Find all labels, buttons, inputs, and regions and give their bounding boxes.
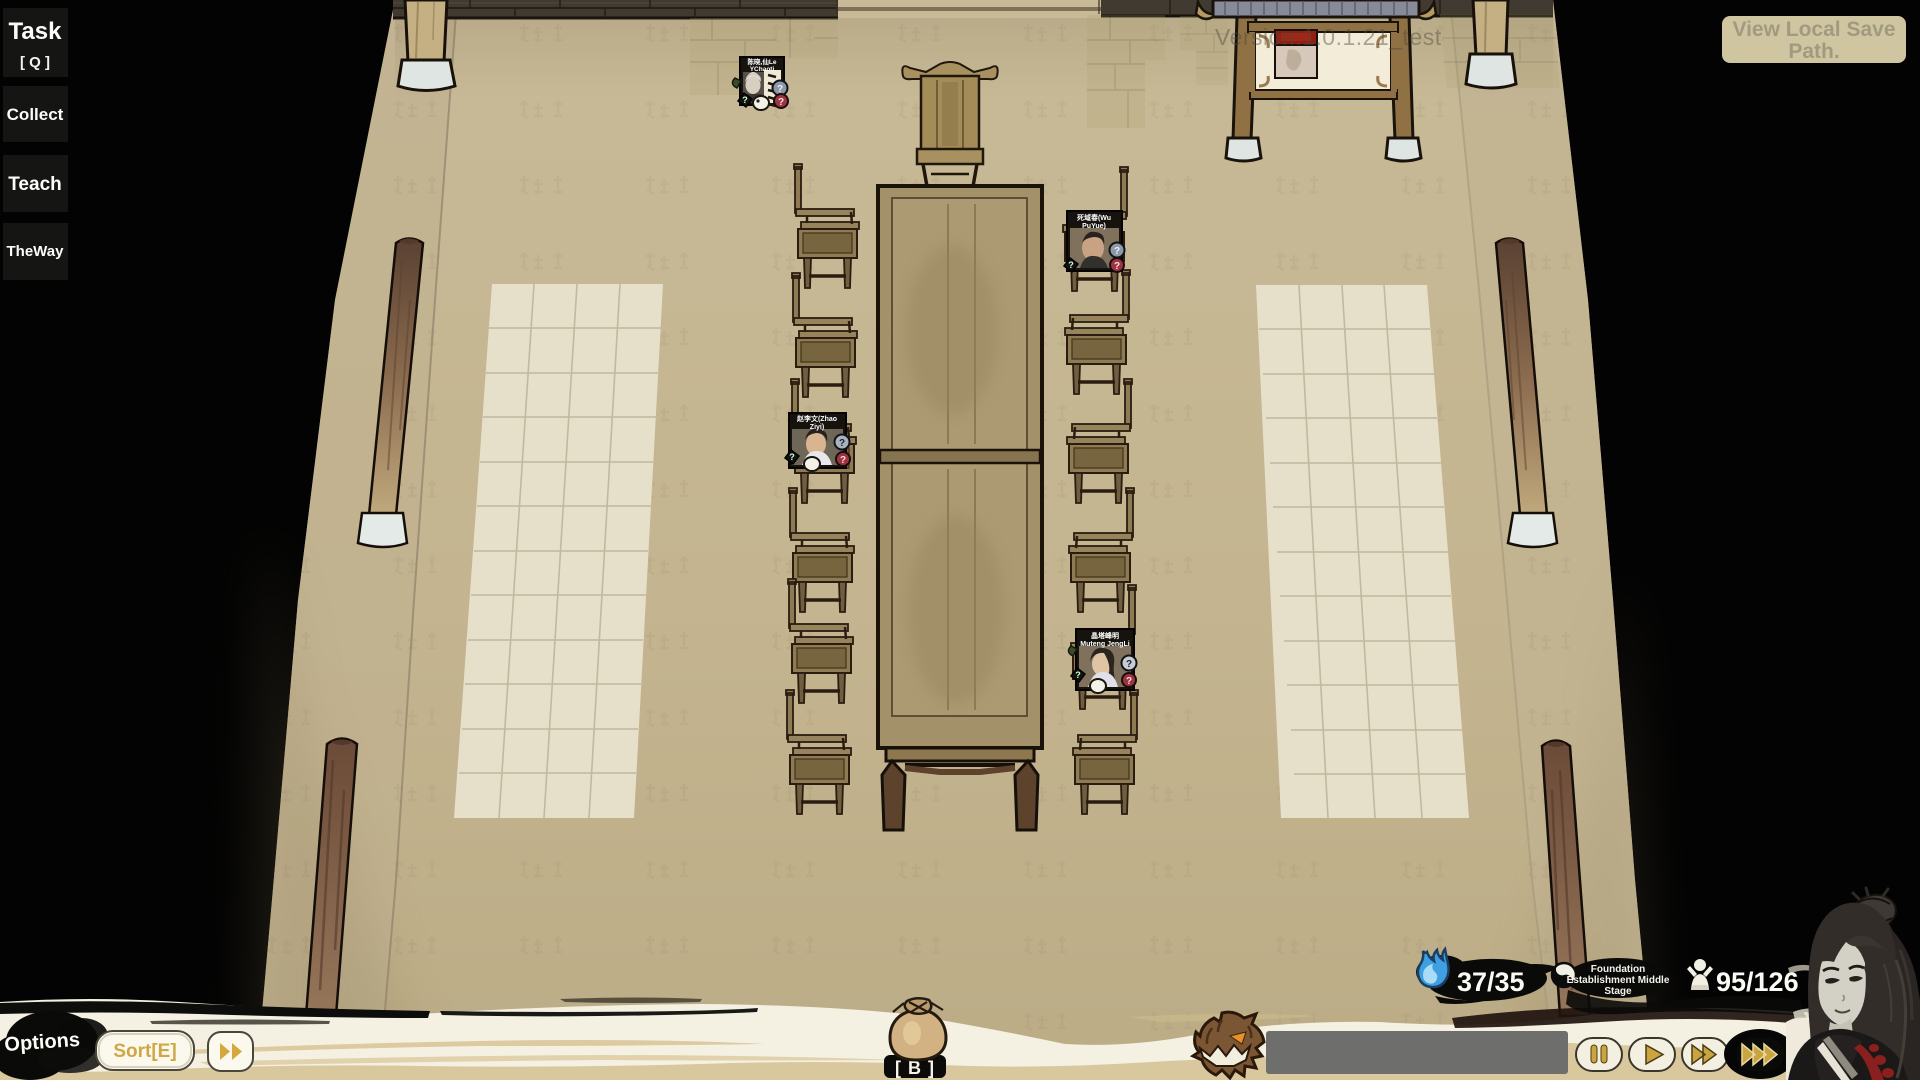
- svg-text:37/35: 37/35: [1457, 967, 1525, 997]
- svg-text:?: ?: [839, 438, 845, 449]
- svg-text:Muteng JengLi: Muteng JengLi: [1080, 641, 1129, 648]
- svg-text:?: ?: [1126, 676, 1132, 687]
- svg-text:View Local Save: View Local Save: [1732, 18, 1895, 41]
- svg-text:Collect: Collect: [7, 105, 64, 124]
- svg-text:陈晓,仙Le: 陈晓,仙Le: [748, 57, 777, 66]
- svg-text:?: ?: [1114, 261, 1120, 272]
- svg-text:Stage: Stage: [1604, 986, 1632, 997]
- svg-text:Teach: Teach: [8, 174, 62, 195]
- svg-text:死域春(Wu: 死域春(Wu: [1076, 213, 1111, 222]
- svg-text:?: ?: [789, 452, 795, 462]
- svg-text:晶塔峰明: 晶塔峰明: [1091, 631, 1119, 640]
- svg-text:PuYue): PuYue): [1082, 223, 1106, 230]
- svg-text:?: ?: [1068, 260, 1074, 270]
- svg-text:Path.: Path.: [1788, 40, 1839, 63]
- svg-text:TheWay: TheWay: [7, 243, 65, 260]
- svg-text:95/126: 95/126: [1716, 967, 1799, 997]
- svg-text:Establishment Middle: Establishment Middle: [1567, 975, 1670, 986]
- svg-text:Task: Task: [9, 18, 63, 45]
- svg-text:?: ?: [742, 95, 748, 105]
- svg-text:?: ?: [778, 97, 784, 108]
- svg-text:Ziyi): Ziyi): [810, 424, 824, 431]
- svg-text:?: ?: [1114, 246, 1120, 257]
- svg-text:Sort[E]: Sort[E]: [113, 1041, 176, 1062]
- svg-text:YChaoti: YChaoti: [750, 66, 775, 73]
- svg-text:赵李文(Zhao: 赵李文(Zhao: [796, 414, 837, 423]
- svg-text:Version:1.0.1.21_test: Version:1.0.1.21_test: [1215, 24, 1442, 50]
- svg-text:?: ?: [1075, 670, 1081, 680]
- svg-text:[ Q ]: [ Q ]: [20, 54, 50, 71]
- svg-text:?: ?: [840, 455, 846, 466]
- svg-text:?: ?: [1126, 659, 1132, 670]
- svg-text:Foundation: Foundation: [1591, 964, 1645, 975]
